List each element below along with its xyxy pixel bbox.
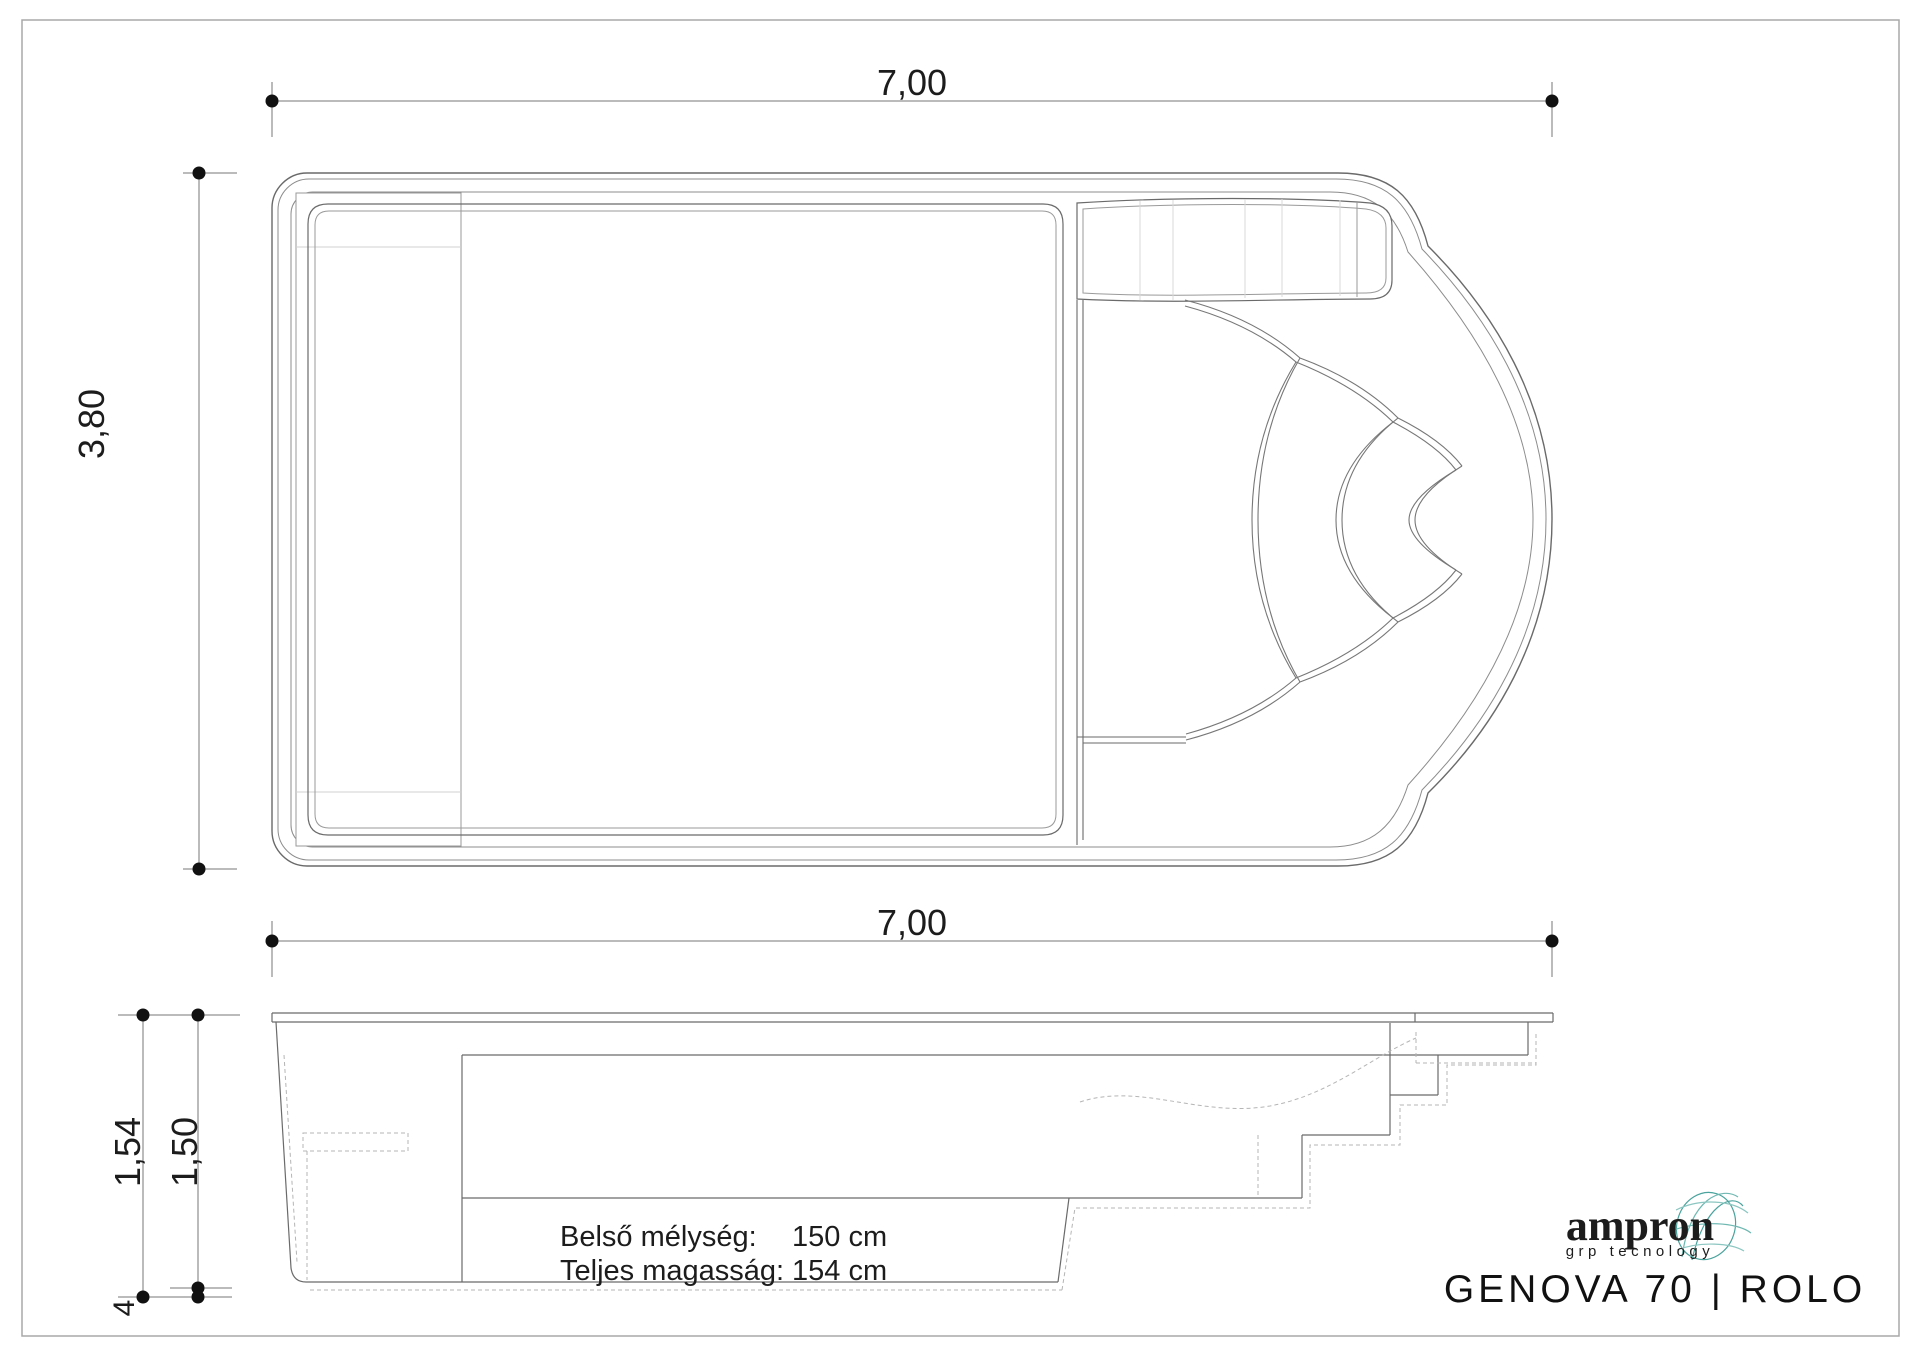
spec-block: Belső mélység: 150 cm Teljes magasság: 1… [560,1221,887,1287]
dim-plan-length-label: 7,00 [877,62,947,103]
title-block: ampron grp tecnology GENOVA 70 | ROLO [1444,1185,1866,1311]
dim-total-height-label: 1,54 [107,1117,148,1187]
plan-stair-boundary [1077,300,1186,845]
dim-inner-depth-label: 1,50 [164,1117,205,1187]
dim-dot [266,935,279,948]
spec-total-height-label: Teljes magasság: [560,1255,784,1287]
dim-shell-offset-label: 4 [108,1300,141,1317]
dim-dot [137,1009,150,1022]
spec-inner-depth-label: Belső mélység: [560,1221,757,1253]
dim-plan-width-lines [183,173,237,869]
plan-curved-stairs [1185,300,1462,740]
drawing-sheet: 7,00 3,80 7,00 1,5 [0,0,1920,1358]
model-title: GENOVA 70 | ROLO [1444,1268,1866,1311]
plan-left-bench [296,193,461,846]
brand-tagline: grp tecnology [1566,1243,1715,1260]
spec-total-height-value: 154 cm [792,1255,887,1287]
section-view [272,1013,1553,1290]
dim-dot [192,1291,205,1304]
spec-inner-depth-value: 150 cm [792,1221,887,1253]
plan-view [272,173,1552,866]
section-flange [272,1013,1553,1022]
dim-section-length-label: 7,00 [877,902,947,943]
dim-dot [266,95,279,108]
dim-dot [193,167,206,180]
dim-dot [1546,95,1559,108]
dim-plan-width-label: 3,80 [71,389,112,459]
dim-dot [193,863,206,876]
plan-roller-bench [1077,199,1392,302]
section-profile [276,1022,1528,1282]
dim-dot [192,1009,205,1022]
dim-dot [1546,935,1559,948]
section-hidden-lines [284,1032,1536,1290]
pool-technical-drawing: 7,00 3,80 7,00 1,5 [0,0,1920,1358]
